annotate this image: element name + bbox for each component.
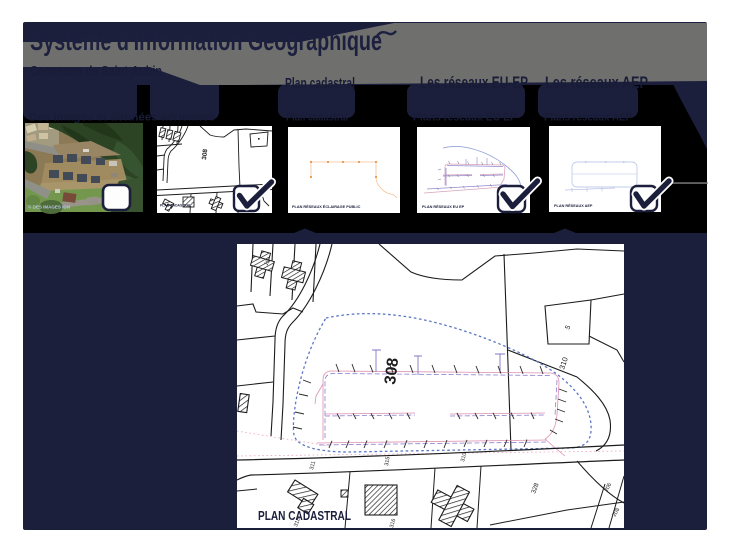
svg-text:PLAN CADASTRAL: PLAN CADASTRAL (258, 509, 351, 523)
svg-text:308: 308 (382, 357, 402, 386)
svg-text:Commune de Saint-Aubin: Commune de Saint-Aubin (30, 63, 162, 79)
svg-text:Plans réseaux AEP: Plans réseaux AEP (544, 112, 632, 124)
svg-text:PLAN RÉSEAUX AEP: PLAN RÉSEAUX AEP (554, 203, 593, 208)
svg-text:Des images et données aérienne: Des images et données aériennes (29, 112, 215, 124)
svg-text:308: 308 (201, 148, 209, 160)
svg-text:PLAN CADASTRAL: PLAN CADASTRAL (160, 204, 191, 208)
svg-text:Les réseaux EU-EP: Les réseaux EU-EP (420, 73, 528, 92)
svg-text:© DES IMAGES IGN: © DES IMAGES IGN (28, 204, 70, 210)
svg-text:PLAN RÉSEAUX EU EP: PLAN RÉSEAUX EU EP (422, 204, 465, 209)
svg-text:Les réseaux AEP: Les réseaux AEP (545, 73, 648, 92)
svg-text:Système d'Information Géograph: Système d'Information Géographique (30, 25, 382, 56)
svg-text:PLAN RÉSEAUX ÉCLAIRAGE PUBLIC: PLAN RÉSEAUX ÉCLAIRAGE PUBLIC (292, 204, 361, 209)
svg-text:Plans réseaux EU EP: Plans réseaux EU EP (413, 112, 517, 124)
svg-text:Plan cadastral: Plan cadastral (286, 112, 348, 124)
svg-text:Plan cadastral: Plan cadastral (285, 75, 355, 92)
